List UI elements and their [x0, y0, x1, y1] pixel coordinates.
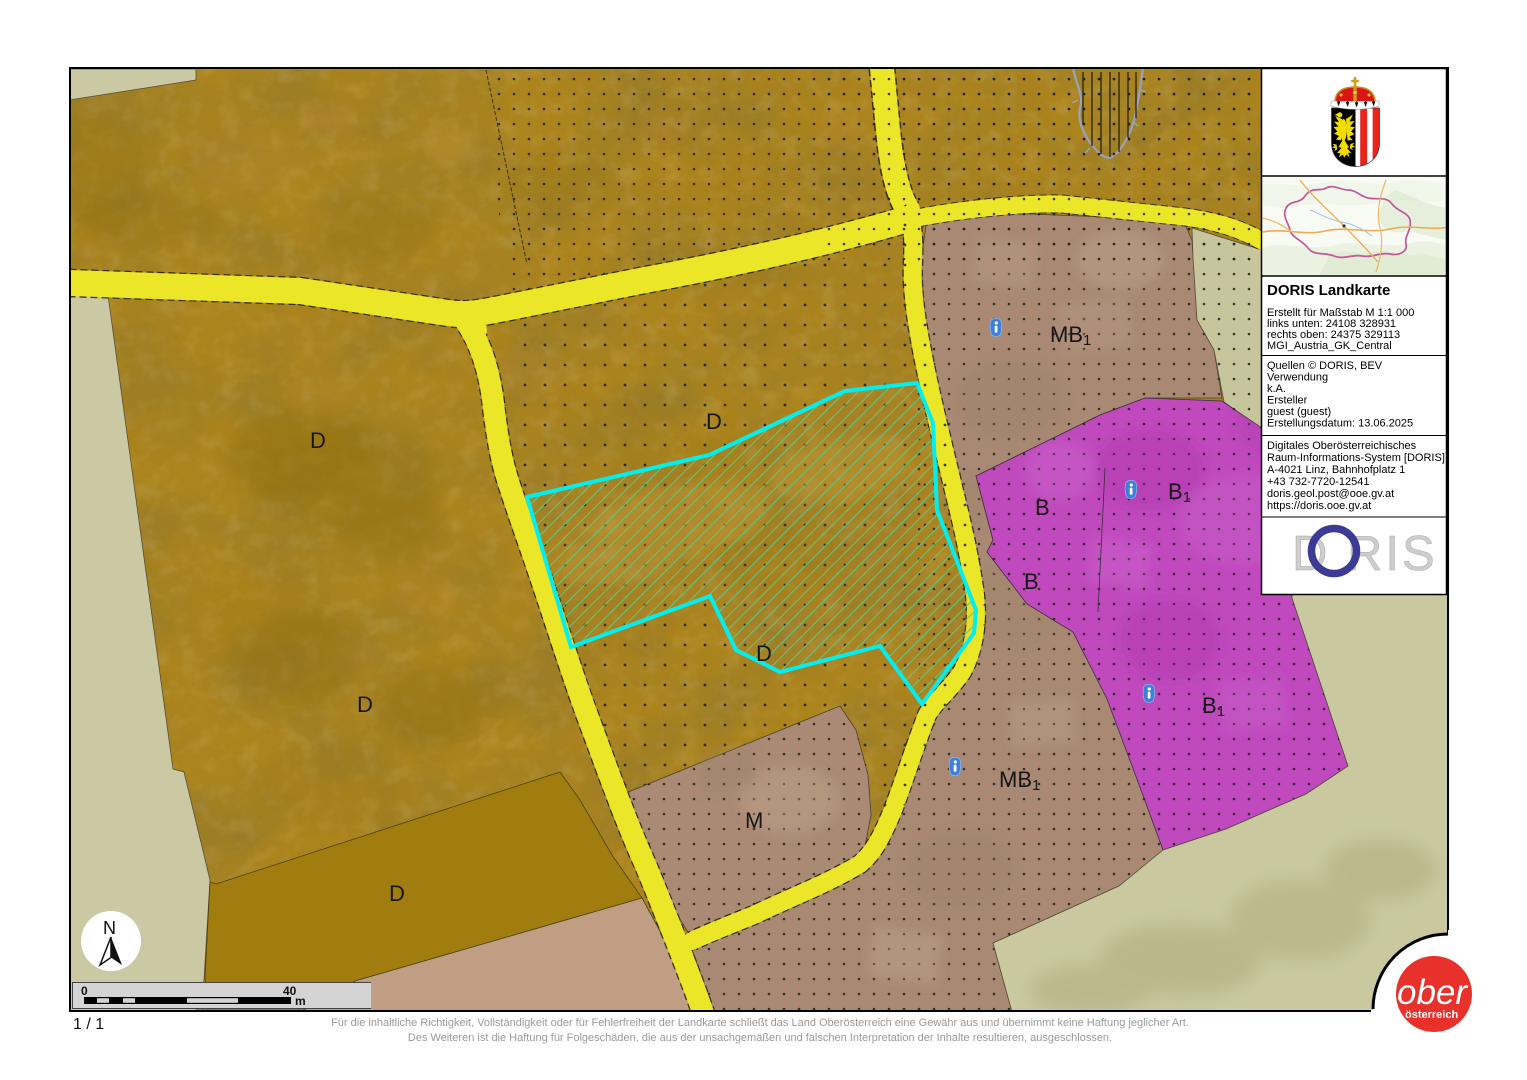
svg-text:B: B: [1035, 495, 1050, 520]
svg-text:Raum-Informations-System [DORI: Raum-Informations-System [DORIS]: [1267, 452, 1445, 464]
svg-text:Des Weiteren ist die Haftung f: Des Weiteren ist die Haftung für Folgesc…: [408, 1032, 1112, 1044]
svg-text:D: D: [310, 428, 326, 453]
svg-text:Verwendung: Verwendung: [1267, 372, 1328, 384]
svg-text:1 / 1: 1 / 1: [73, 1016, 104, 1033]
svg-text:D: D: [706, 409, 722, 434]
svg-text:N: N: [103, 918, 116, 938]
svg-text:Erstellungsdatum: 13.06.2025: Erstellungsdatum: 13.06.2025: [1267, 418, 1413, 430]
svg-text:ober: ober: [1397, 973, 1468, 1012]
svg-text:DORIS Landkarte: DORIS Landkarte: [1267, 282, 1390, 299]
svg-text:guest (guest): guest (guest): [1267, 406, 1331, 418]
svg-text:Ersteller: Ersteller: [1267, 395, 1308, 407]
svg-text:D: D: [756, 641, 772, 666]
svg-text:B: B: [1024, 569, 1039, 594]
svg-text:doris.geol.post@ooe.gv.at: doris.geol.post@ooe.gv.at: [1267, 488, 1394, 500]
svg-text:Für die inhaltliche Richtigkei: Für die inhaltliche Richtigkeit, Vollstä…: [331, 1017, 1189, 1029]
svg-text:MGI_Austria_GK_Central: MGI_Austria_GK_Central: [1267, 340, 1392, 352]
svg-text:österreich: österreich: [1405, 1009, 1458, 1021]
svg-text:Digitales Oberösterreichisches: Digitales Oberösterreichisches: [1267, 440, 1417, 452]
svg-text:D: D: [389, 881, 405, 906]
svg-text:https://doris.ooe.gv.at: https://doris.ooe.gv.at: [1267, 500, 1371, 512]
svg-text:+43 732-7720-12541: +43 732-7720-12541: [1267, 476, 1369, 488]
svg-text:k.A.: k.A.: [1267, 383, 1286, 395]
svg-text:M: M: [745, 808, 763, 833]
svg-text:D: D: [357, 692, 373, 717]
svg-text:A-4021 Linz, Bahnhofplatz 1: A-4021 Linz, Bahnhofplatz 1: [1267, 464, 1405, 476]
svg-text:0: 0: [81, 984, 88, 998]
svg-text:m: m: [295, 994, 306, 1008]
svg-text:Quellen © DORIS, BEV: Quellen © DORIS, BEV: [1267, 360, 1383, 372]
